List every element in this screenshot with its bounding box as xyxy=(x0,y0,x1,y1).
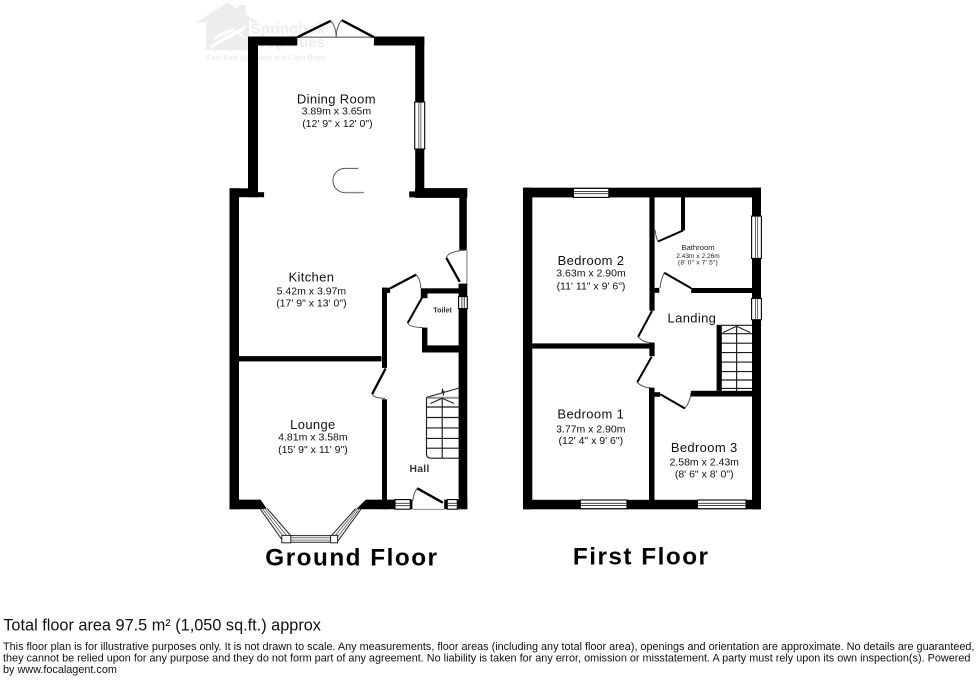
svg-text:Toilet: Toilet xyxy=(433,305,452,314)
svg-text:3.63m x 2.90m: 3.63m x 2.90m xyxy=(556,268,626,280)
svg-text:Kitchen: Kitchen xyxy=(288,270,334,285)
svg-text:Hall: Hall xyxy=(409,464,429,475)
svg-text:(12' 9" x 12' 0"): (12' 9" x 12' 0") xyxy=(302,118,372,130)
svg-text:(15' 9" x 11' 9"): (15' 9" x 11' 9") xyxy=(278,444,348,456)
svg-text:3.77m x 2.90m: 3.77m x 2.90m xyxy=(556,423,626,435)
svg-text:Bedroom 2: Bedroom 2 xyxy=(558,253,625,268)
svg-text:(8' 0" x 7' 5"): (8' 0" x 7' 5") xyxy=(678,260,718,267)
svg-text:Landing: Landing xyxy=(668,310,717,325)
svg-text:(8' 6" x 8' 0"): (8' 6" x 8' 0") xyxy=(675,469,734,481)
svg-text:4.81m x 3.58m: 4.81m x 3.58m xyxy=(278,431,348,443)
svg-text:2.58m x 2.43m: 2.58m x 2.43m xyxy=(669,457,739,469)
svg-text:by www.focalagent.com: by www.focalagent.com xyxy=(3,664,117,676)
svg-text:3.89m x 3.65m: 3.89m x 3.65m xyxy=(302,106,372,118)
svg-text:Bathroom: Bathroom xyxy=(681,243,714,252)
svg-text:5.42m x 3.97m: 5.42m x 3.97m xyxy=(277,286,347,298)
svg-text:Bedroom 1: Bedroom 1 xyxy=(557,407,624,422)
svg-text:Ground Floor: Ground Floor xyxy=(265,545,438,572)
svg-text:Lounge: Lounge xyxy=(290,417,335,432)
svg-text:This floor plan is for illustr: This floor plan is for illustrative purp… xyxy=(3,641,974,653)
svg-text:they cannot be relied upon for: they cannot be relied upon for any purpo… xyxy=(3,652,970,664)
svg-text:Total floor area 97.5 m² (1,05: Total floor area 97.5 m² (1,050 sq.ft.) … xyxy=(3,617,321,635)
svg-text:First Floor: First Floor xyxy=(573,544,710,571)
svg-text:(11' 11" x 9' 6"): (11' 11" x 9' 6") xyxy=(557,281,626,293)
svg-text:Fast Sale Specialist and Cash: Fast Sale Specialist and Cash Buyer xyxy=(207,53,327,62)
svg-text:(12' 4" x 9' 6"): (12' 4" x 9' 6") xyxy=(559,435,624,447)
svg-text:(17' 9" x 13' 0"): (17' 9" x 13' 0") xyxy=(276,298,346,310)
svg-text:Bedroom 3: Bedroom 3 xyxy=(671,440,738,455)
svg-text:Dining Room: Dining Room xyxy=(297,91,376,106)
